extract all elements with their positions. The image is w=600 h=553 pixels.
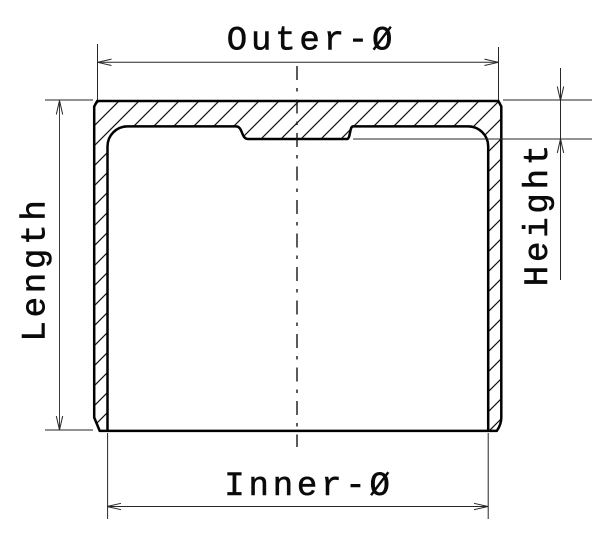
svg-text:Outer-Ø: Outer-Ø bbox=[227, 23, 396, 61]
svg-text:Length: Length bbox=[18, 196, 56, 341]
svg-text:Height: Height bbox=[520, 141, 558, 286]
svg-text:Inner-Ø: Inner-Ø bbox=[224, 468, 393, 506]
